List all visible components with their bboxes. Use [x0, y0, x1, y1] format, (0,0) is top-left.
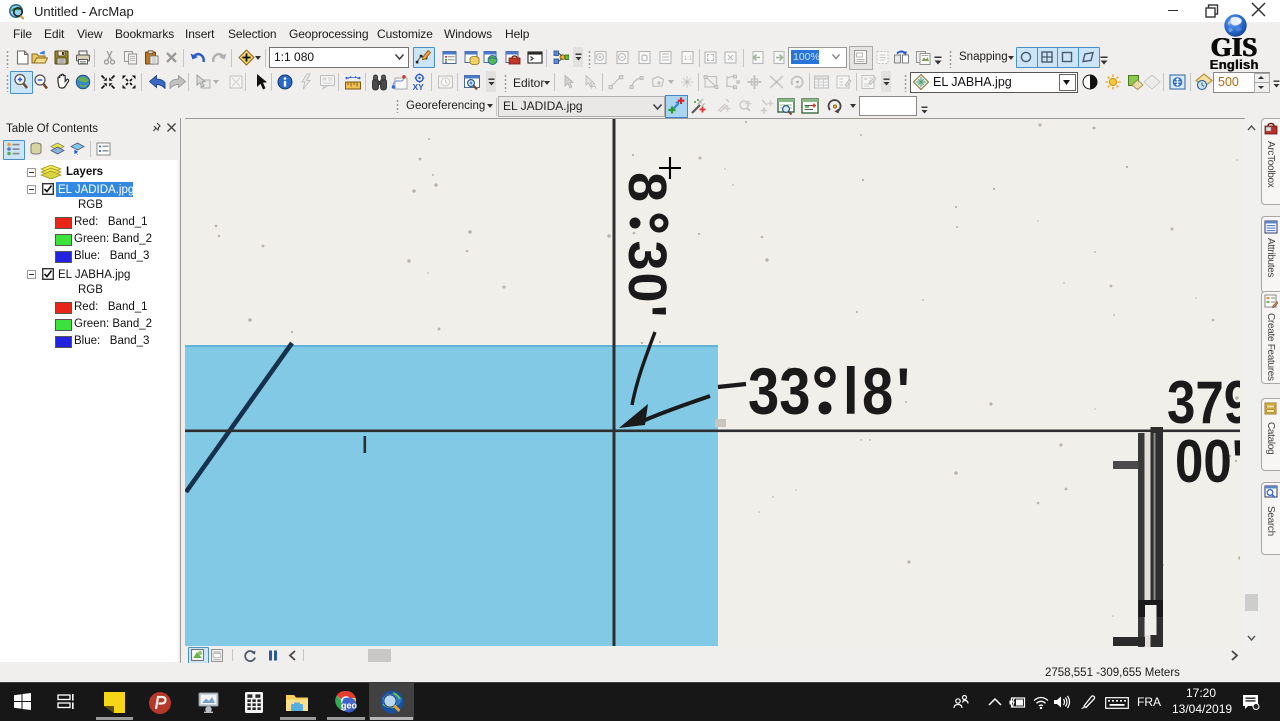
- svg-text:1:1: 1:1: [684, 56, 693, 62]
- svg-text:8: 8: [617, 172, 677, 202]
- svg-text:379: 379: [1167, 369, 1244, 436]
- svg-text:XY: XY: [413, 82, 425, 91]
- svg-text:A: A: [591, 82, 597, 91]
- svg-text:00': 00': [1175, 428, 1244, 495]
- svg-text:geo: geo: [341, 700, 358, 710]
- svg-text:33: 33: [748, 355, 810, 428]
- svg-text:l8': l8': [843, 355, 913, 428]
- svg-text:30': 30': [617, 241, 677, 320]
